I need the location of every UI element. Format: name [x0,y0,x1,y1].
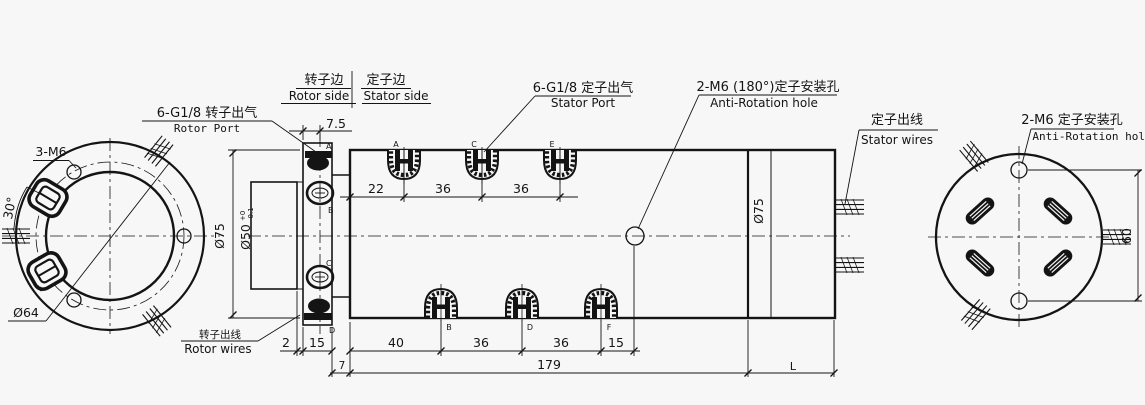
dim-179: 179 [537,357,561,372]
dim-15: 15 [309,335,325,350]
stator-wires-bundle [836,257,864,273]
stator-port-d [506,284,538,321]
flange-port-offset-dim: 7.5 [326,116,346,131]
dim-15: 15 [608,335,624,350]
dim-36: 36 [473,335,489,350]
dim-36: 36 [553,335,569,350]
dim-36: 36 [435,181,451,196]
dim-36: 36 [513,181,529,196]
port-letter-bottom-f: F [607,323,612,332]
m6-hole [67,165,81,179]
rotor-wires-callout-zh: 转子出线 [199,328,241,341]
dim-22: 22 [368,181,384,196]
port-angle-dim: 30° [0,196,19,221]
stator-wires-bundle [836,199,864,215]
vent-slot [963,195,997,227]
stator-side-label-zh: 定子边 [366,73,405,88]
port-letter-bottom-d: D [527,323,533,332]
port-letter-a: A [326,142,332,151]
port-letter-c: C [326,259,332,268]
port-letter-top-e: E [549,140,554,149]
rotor-port-callout-en: Rotor Port [174,122,240,135]
rotor-flange-section: A B C D [251,134,351,335]
side-header: 转子边 Rotor side 定子边 Stator side [281,71,431,108]
rotor-port-callout-zh: 6-G1/8 转子出气 [157,105,258,121]
rotor-face-view: F E 3-M6 30° Ø64 [0,135,220,337]
slip-ring-drawing: 转子边 Rotor side 定子边 Stator side F E 3-M6 … [0,0,1145,405]
anti-rotation-180-callout-zh: 2-M6 (180°)定子安装孔 [696,80,839,95]
body-dia-mid-dim: Ø75 [751,198,766,224]
svg-text:Ø50: Ø50 [238,224,253,250]
port-letter-bottom-b: B [446,323,452,332]
flange-port-a [307,156,329,171]
vent-slot [1041,247,1075,279]
flange-port-d [308,299,330,314]
dim-7: 7 [339,360,346,372]
port-letter-top-c: C [471,140,477,149]
rotor-boss [251,182,297,289]
stator-port-f [585,284,617,321]
m6-hole [67,293,81,307]
anti-rotation-2m6-callout-en: Anti-Rotation hole [1032,130,1145,143]
dim-2: 2 [282,335,290,350]
stator-port-callout-zh: 6-G1/8 定子出气 [533,80,634,96]
callouts: 6-G1/8 转子出气 Rotor Port 6-G1/8 定子出气 Stato… [142,80,1145,356]
boss-dia-dim: Ø50 +0 -0.1 [238,207,255,250]
dim-L: L [790,360,797,373]
stator-port-callout-en: Stator Port [551,96,616,110]
stator-face-view: 60 [928,140,1142,330]
vent-slot [1041,195,1075,227]
stator-wires-bundle [959,140,989,172]
stator-wires-callout-zh: 定子出线 [871,113,923,128]
body-dia-left-dim: Ø75 [212,223,227,249]
hole-spacing-dim: 60 [1119,228,1134,244]
rotor-wires-callout-en: Rotor wires [184,342,251,356]
port-letter-b: B [328,206,334,215]
anti-rotation-2m6-callout-zh: 2-M6 定子安装孔 [1021,113,1123,128]
bolt-holes-callout: 3-M6 [35,144,66,159]
svg-text:+0: +0 [239,211,247,221]
technical-drawing-page: 转子边 Rotor side 定子边 Stator side F E 3-M6 … [0,0,1145,405]
bolt-circle-dia-dim: Ø64 [13,305,39,320]
stator-wires-callout-en: Stator wires [861,133,933,147]
vent-slot [963,247,997,279]
dim-40: 40 [388,335,404,350]
anti-rotation-180-callout-en: Anti-Rotation hole [710,96,818,110]
rotor-side-label-en: Rotor side [289,89,350,103]
port-letter-top-a: A [393,140,399,149]
stator-port-b [425,284,457,321]
stator-body-section: A C E B D F Ø75 [248,140,864,332]
rotor-side-label-zh: 转子边 [304,73,343,88]
stator-side-label-en: Stator side [363,89,428,103]
svg-text:-0.1: -0.1 [247,207,255,221]
